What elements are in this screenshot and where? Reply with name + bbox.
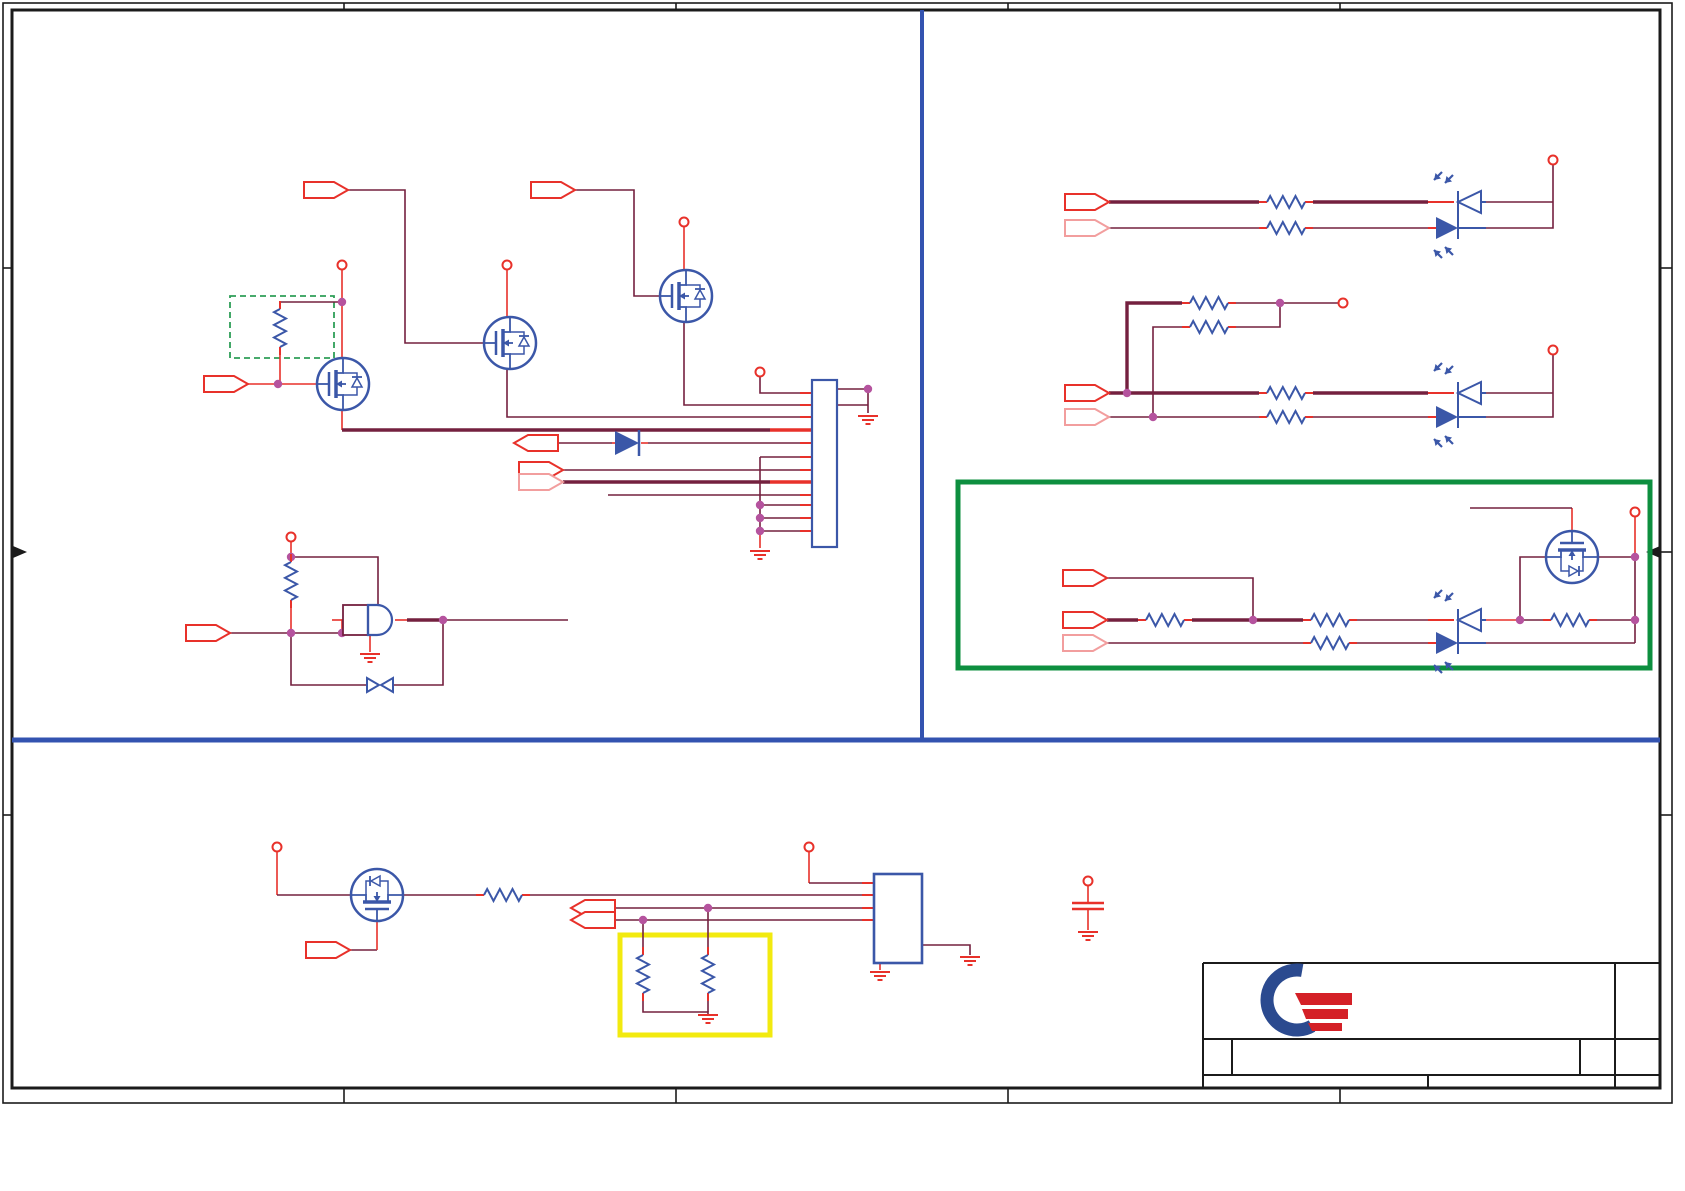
- power-port-circle[interactable]: [805, 843, 814, 852]
- logo-stripe: [1302, 1009, 1348, 1019]
- wire: [1127, 303, 1182, 393]
- junction-dot: [338, 298, 346, 306]
- resistor[interactable]: [1259, 222, 1313, 234]
- power-port-circle[interactable]: [756, 368, 765, 377]
- resistor-zigzag: [1551, 614, 1589, 626]
- parts: [812, 380, 922, 963]
- resistor-zigzag: [285, 562, 297, 600]
- net-flag[interactable]: [514, 435, 558, 451]
- ground-symbols: [360, 416, 1098, 1023]
- resistor[interactable]: [476, 889, 530, 901]
- resistor-zigzag: [1190, 321, 1228, 333]
- mosfet[interactable]: [484, 317, 536, 369]
- junction-dot: [1276, 299, 1284, 307]
- wire: [575, 190, 660, 296]
- wire: [507, 369, 800, 417]
- led-triangle-filled: [1436, 217, 1458, 239]
- diode[interactable]: [615, 430, 639, 456]
- led-pairs: [1428, 172, 1486, 673]
- power-port-circle[interactable]: [1549, 156, 1558, 165]
- resistor[interactable]: [1543, 614, 1597, 626]
- frame-inner: [12, 10, 1660, 1088]
- schematic-page: [0, 0, 1685, 1191]
- wire: [837, 389, 868, 413]
- power-port-circle[interactable]: [1084, 877, 1093, 886]
- net-flag[interactable]: [306, 942, 350, 958]
- resistor[interactable]: [1259, 411, 1313, 423]
- resistor[interactable]: [1259, 196, 1313, 208]
- capacitor[interactable]: [1072, 903, 1104, 909]
- crystal-triangle: [381, 678, 393, 692]
- net-flag[interactable]: [1065, 409, 1109, 425]
- logo-stripe: [1308, 1023, 1342, 1031]
- net-flag[interactable]: [204, 376, 248, 392]
- power-port-circle[interactable]: [1631, 508, 1640, 517]
- wire: [1520, 557, 1546, 620]
- title-block: [1203, 963, 1660, 1088]
- junction-dot: [1123, 389, 1131, 397]
- net-flag[interactable]: [304, 182, 348, 198]
- junction-dot: [1149, 413, 1157, 421]
- gate-d-shape: [368, 605, 392, 635]
- led-triangle-outline: [1458, 609, 1481, 631]
- resistor[interactable]: [1303, 637, 1357, 649]
- net-flag[interactable]: [186, 625, 230, 641]
- wire: [1107, 578, 1253, 620]
- sheet-frame: [3, 3, 1672, 1103]
- green-dashed-box: [230, 296, 334, 358]
- net-flag[interactable]: [571, 912, 615, 928]
- net-flag[interactable]: [531, 182, 575, 198]
- crystal-symbol[interactable]: [367, 678, 393, 692]
- junction-dot: [639, 916, 647, 924]
- green-solid-box: [958, 482, 1650, 668]
- schematic-canvas: [0, 0, 1685, 1191]
- wire: [922, 945, 970, 955]
- wire: [1486, 165, 1553, 228]
- junction-dot: [1631, 616, 1639, 624]
- resistor-zigzag: [1311, 614, 1349, 626]
- resistor-zigzag: [637, 955, 649, 993]
- wire: [1153, 327, 1182, 417]
- ground-symbol: [870, 972, 890, 980]
- resistor[interactable]: [285, 554, 297, 608]
- ground-symbol: [858, 416, 878, 424]
- resistor[interactable]: [1138, 614, 1192, 626]
- net-flags: [186, 182, 1109, 958]
- ground-symbol: [750, 551, 770, 559]
- company-logo: [1267, 970, 1352, 1031]
- resistor[interactable]: [1259, 387, 1313, 399]
- junction-dot: [274, 380, 282, 388]
- junction-dot: [1249, 616, 1257, 624]
- net-flag[interactable]: [1065, 385, 1109, 401]
- zone-arrow-left: [13, 546, 27, 558]
- ground-symbol: [960, 957, 980, 965]
- gate-input-box: [343, 605, 368, 635]
- frame-outer: [3, 3, 1672, 1103]
- power-port-circle[interactable]: [338, 261, 347, 270]
- net-flag[interactable]: [1063, 612, 1107, 628]
- resistor-zigzag: [484, 889, 522, 901]
- wire: [760, 377, 800, 393]
- power-port-circle[interactable]: [1339, 299, 1348, 308]
- led-triangle-outline: [1458, 382, 1481, 404]
- power-port-circle[interactable]: [1549, 346, 1558, 355]
- diodes: [615, 430, 639, 456]
- led-triangle-filled: [1436, 632, 1458, 654]
- connector-body[interactable]: [812, 380, 837, 547]
- resistor-zigzag: [1267, 196, 1305, 208]
- resistor-zigzag: [1311, 637, 1349, 649]
- mosfet[interactable]: [1546, 531, 1598, 583]
- led-pair[interactable]: [1428, 590, 1486, 673]
- resistor[interactable]: [274, 301, 286, 355]
- resistors: [274, 196, 1597, 1001]
- power-port-circle[interactable]: [680, 218, 689, 227]
- junction-dot: [704, 904, 712, 912]
- net-flag[interactable]: [1065, 194, 1109, 210]
- wire: [1236, 303, 1280, 327]
- wire: [291, 633, 367, 685]
- resistor-zigzag: [1267, 387, 1305, 399]
- diode-triangle: [615, 431, 639, 455]
- power-port-circle[interactable]: [503, 261, 512, 270]
- resistor-zigzag: [1190, 297, 1228, 309]
- junction-dot: [1516, 616, 1524, 624]
- net-flag[interactable]: [1063, 635, 1107, 651]
- resistor-zigzag: [274, 309, 286, 347]
- ground-symbol: [360, 654, 380, 662]
- junction-dot: [287, 629, 295, 637]
- resistor[interactable]: [1182, 321, 1236, 333]
- mosfet[interactable]: [317, 358, 369, 410]
- buffer-gate[interactable]: [343, 605, 392, 635]
- resistor-zigzag: [702, 955, 714, 993]
- led-pair[interactable]: [1428, 172, 1486, 258]
- ground-symbol: [1078, 932, 1098, 940]
- wires: [230, 165, 1635, 1014]
- resistor[interactable]: [637, 947, 649, 1001]
- net-flag[interactable]: [1065, 220, 1109, 236]
- led-triangle-filled: [1436, 406, 1458, 428]
- logo-stripe: [1295, 993, 1352, 1005]
- wire: [1486, 355, 1553, 417]
- wire: [348, 190, 484, 343]
- junction-dot: [864, 385, 872, 393]
- crystal-triangle: [367, 678, 379, 692]
- led-pair[interactable]: [1428, 363, 1486, 447]
- junction-dot: [756, 514, 764, 522]
- wire: [393, 620, 443, 685]
- power-port-circle[interactable]: [287, 533, 296, 542]
- power-port-circle[interactable]: [273, 843, 282, 852]
- net-flag[interactable]: [1063, 570, 1107, 586]
- net-flag[interactable]: [519, 474, 563, 490]
- resistor[interactable]: [702, 947, 714, 1001]
- junction-dot: [439, 616, 447, 624]
- resistor-zigzag: [1267, 411, 1305, 423]
- section-dividers: [12, 10, 1660, 740]
- ground-symbol: [698, 1015, 718, 1023]
- wire: [643, 1001, 708, 1014]
- resistor-zigzag: [1146, 614, 1184, 626]
- mosfet[interactable]: [660, 270, 712, 322]
- resistor-zigzag: [1267, 222, 1305, 234]
- junction-dot: [756, 501, 764, 509]
- junction-dot: [1631, 553, 1639, 561]
- mosfet[interactable]: [351, 869, 403, 921]
- wire: [291, 557, 378, 605]
- resistor[interactable]: [1303, 614, 1357, 626]
- ic-body[interactable]: [874, 874, 922, 963]
- junction-dot: [756, 527, 764, 535]
- resistor[interactable]: [1182, 297, 1236, 309]
- led-triangle-outline: [1458, 191, 1481, 213]
